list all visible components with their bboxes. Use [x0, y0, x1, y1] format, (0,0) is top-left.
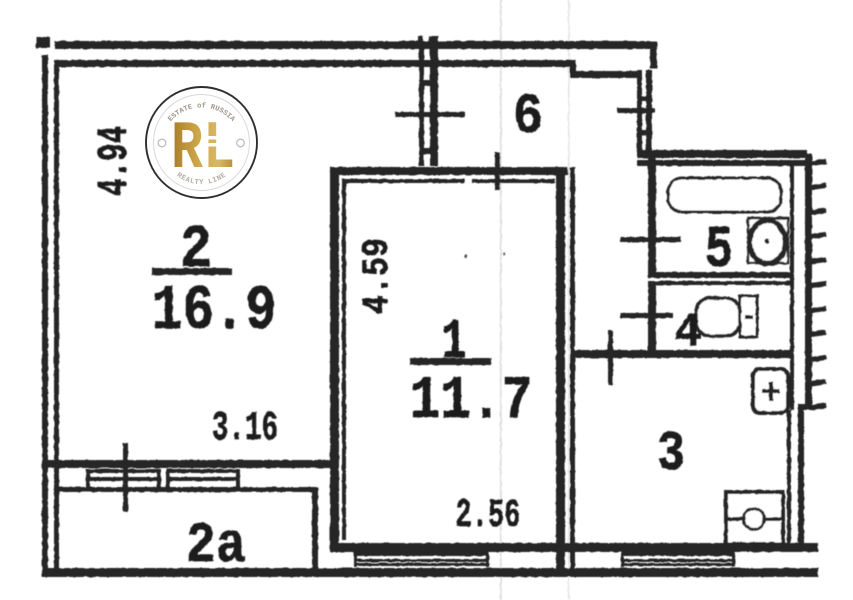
svg-text:6: 6 — [513, 86, 543, 150]
svg-text:16.9: 16.9 — [152, 276, 277, 347]
svg-text:3: 3 — [657, 422, 685, 486]
svg-text:4.94: 4.94 — [90, 126, 139, 196]
svg-text:11.7: 11.7 — [410, 368, 533, 436]
svg-text:2.56: 2.56 — [456, 494, 521, 539]
svg-text:4.59: 4.59 — [357, 238, 399, 314]
svg-text:3.16: 3.16 — [212, 406, 278, 452]
